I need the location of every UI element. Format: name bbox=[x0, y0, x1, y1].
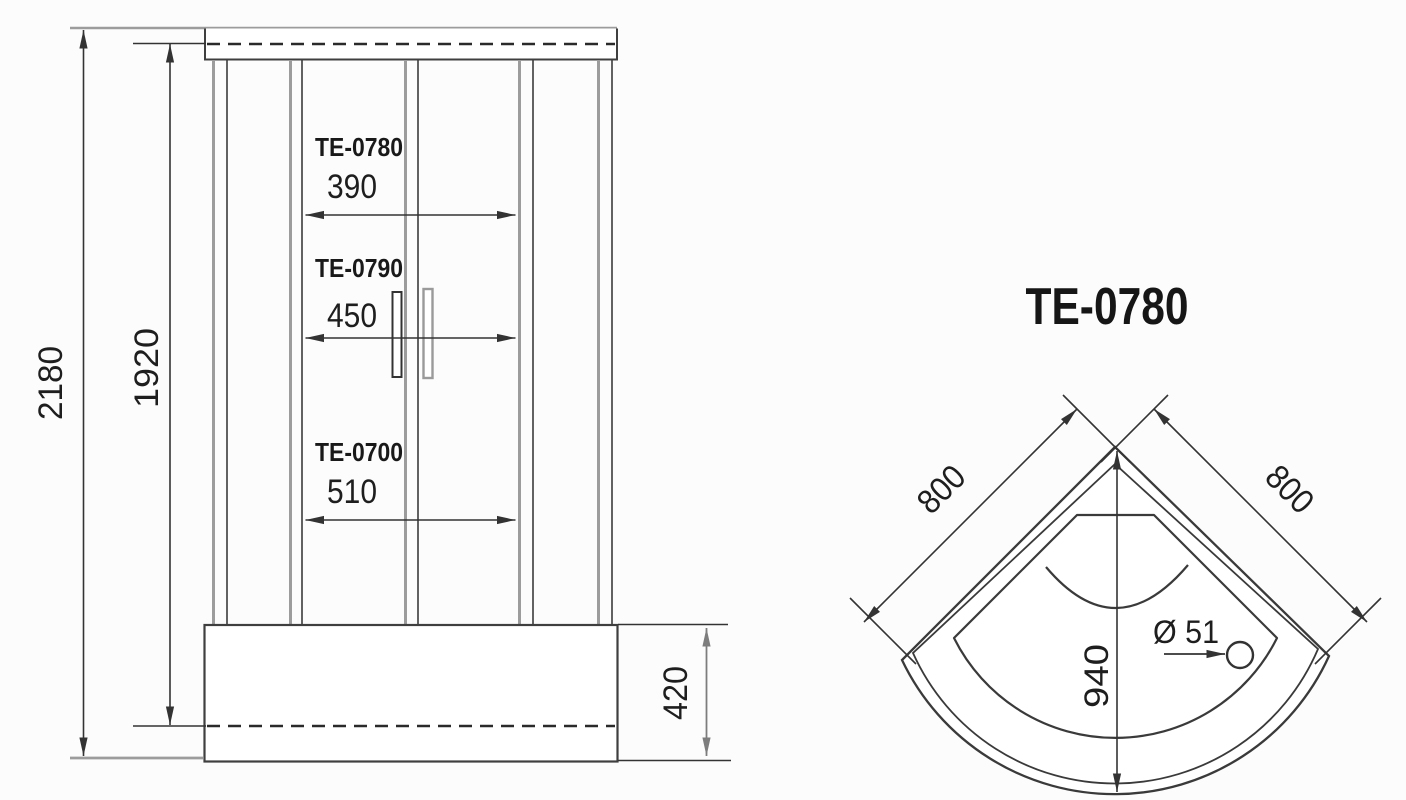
extension-line-corner-right bbox=[1315, 598, 1381, 664]
door-handle-right bbox=[424, 289, 433, 378]
dim-label-width-390: 390 bbox=[327, 168, 377, 206]
dim-label-width-450: 450 bbox=[327, 297, 377, 335]
dim-label-door-height: 1920 bbox=[128, 328, 166, 408]
extension-line-apex-right bbox=[1063, 395, 1130, 462]
model-label-te-0780: TE-0780 bbox=[315, 132, 403, 162]
drain-diameter-label: Ø 51 bbox=[1153, 614, 1219, 650]
extension-line-corner-left bbox=[850, 598, 916, 664]
variant-dimensions: TE-0780 390 TE-0790 450 TE-0700 510 bbox=[306, 132, 516, 520]
plan-view-title: TE-0780 bbox=[1026, 278, 1189, 336]
dim-label-tray-height: 420 bbox=[657, 666, 695, 720]
extension-line-apex-left bbox=[1101, 395, 1168, 462]
dim-label-depth: 940 bbox=[1078, 644, 1116, 708]
drain-hole bbox=[1227, 642, 1253, 668]
model-label-te-0790: TE-0790 bbox=[315, 253, 403, 283]
base-tray bbox=[205, 625, 618, 762]
plan-view: TE-0780 800 800 940 Ø 51 bbox=[850, 278, 1381, 794]
dim-label-overall-height: 2180 bbox=[32, 346, 70, 420]
front-elevation-view: 2180 1920 TE-0780 390 TE-0790 450 TE-070… bbox=[32, 28, 731, 762]
dim-label-side-left: 800 bbox=[910, 458, 974, 522]
dim-label-side-right: 800 bbox=[1258, 458, 1322, 522]
model-label-te-0700: TE-0700 bbox=[315, 437, 403, 467]
glass-panel-lines bbox=[214, 60, 613, 624]
shower-cabin-technical-drawing: 2180 1920 TE-0780 390 TE-0790 450 TE-070… bbox=[0, 0, 1406, 800]
door-handle-left bbox=[393, 292, 402, 377]
dim-label-width-510: 510 bbox=[327, 473, 377, 511]
